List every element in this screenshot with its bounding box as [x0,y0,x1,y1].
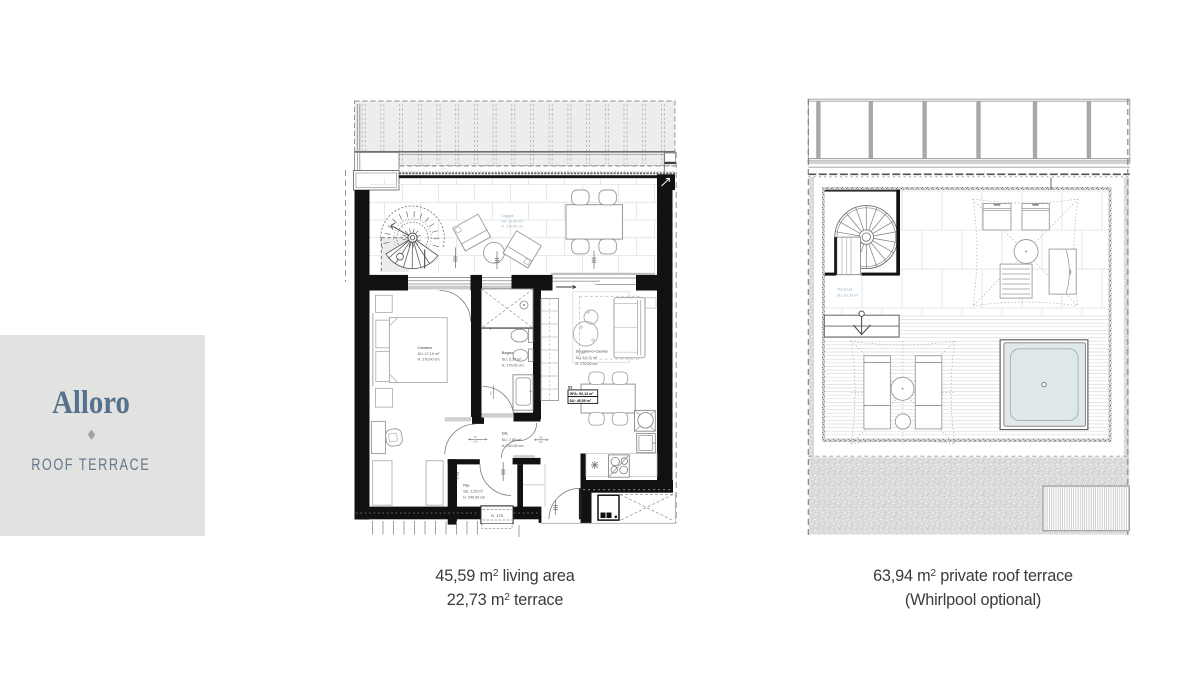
svg-text:240: 240 [539,440,544,444]
svg-text:SU. 2,25 m²: SU. 2,25 m² [463,490,483,494]
svg-text:SU. 17,10 m²: SU. 17,10 m² [418,352,440,356]
svg-text:H. 240,00 cm: H. 240,00 cm [502,444,524,448]
svg-text:Camera: Camera [418,345,433,350]
svg-text:G. 170: G. 170 [491,513,504,518]
svg-text:SU. 5,39 m²: SU. 5,39 m² [502,357,522,361]
svg-text:SU. 22,36 m²: SU. 22,36 m² [501,219,523,223]
svg-text:H. 240,00 cm: H. 240,00 cm [463,496,485,500]
svg-text:Bagno: Bagno [502,350,514,355]
svg-text:H. 270,00 cm: H. 270,00 cm [502,363,524,367]
svg-text:SU: 45,59 m²: SU: 45,59 m² [570,399,592,403]
svg-text:S2: S2 [568,386,572,390]
svg-text:SU. 19,71 m²: SU. 19,71 m² [576,356,598,360]
svg-text:Rip.: Rip. [463,483,470,488]
svg-text:L+A: L+A [455,471,460,479]
svg-text:Loggia: Loggia [501,213,514,218]
svg-text:Dis.: Dis. [502,431,509,436]
svg-text:H. 270,00 cm: H. 270,00 cm [418,357,440,361]
svg-text:SU. 7,85 m²: SU. 7,85 m² [502,438,522,442]
svg-text:80: 80 [489,391,493,394]
svg-text:100: 100 [539,436,544,440]
svg-text:240: 240 [473,440,478,444]
svg-text:H. 270,00 cm: H. 270,00 cm [501,224,522,228]
svg-text:SU. 61,39 m²: SU. 61,39 m² [837,293,859,297]
svg-text:90: 90 [474,435,477,439]
svg-text:Soggiorno-Cucina: Soggiorno-Cucina [576,349,609,354]
svg-text:H. 270,00 cm: H. 270,00 cm [576,362,598,366]
svg-text:Terrazza: Terrazza [837,287,853,292]
svg-text:GFA: 90,13 m²: GFA: 90,13 m² [570,392,595,396]
